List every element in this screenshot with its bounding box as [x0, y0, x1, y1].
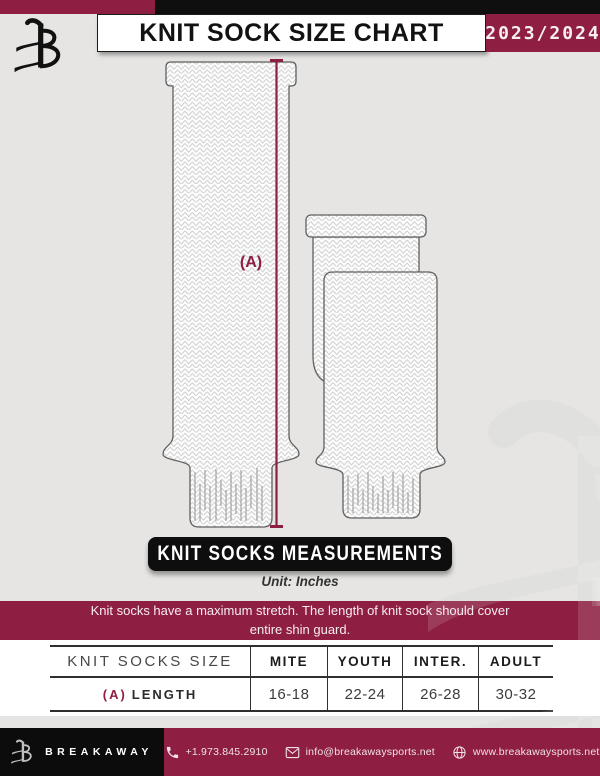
table-header-inter: INTER. — [402, 647, 478, 678]
phone-link[interactable]: +1.973.845.2910 — [165, 745, 268, 760]
page-title: KNIT SOCK SIZE CHART — [139, 19, 443, 48]
season-badge: 2023/2024 — [486, 14, 600, 52]
title-bar: KNIT SOCK SIZE CHART — [97, 14, 486, 52]
page: KNIT SOCK SIZE CHART 2023/2024 — [0, 0, 600, 776]
phone-icon — [165, 745, 180, 760]
brand-wordmark: BREAKAWAY — [45, 746, 153, 758]
top-strip-maroon — [0, 0, 155, 14]
table-header-size: KNIT SOCKS SIZE — [50, 647, 250, 678]
footer: BREAKAWAY +1.973.845.2910 info@breakaway… — [0, 728, 600, 776]
dimension-label-a: (A) — [228, 254, 274, 272]
brand-monogram-logo — [14, 17, 72, 75]
footer-brand-block: BREAKAWAY — [0, 728, 164, 776]
small-sock — [316, 272, 445, 518]
measurements-banner: KNIT SOCKS MEASUREMENTS — [148, 537, 452, 571]
length-key: (A) — [103, 687, 127, 702]
website-address: www.breakawaysports.net — [473, 746, 600, 758]
length-adult: 30-32 — [478, 678, 553, 710]
footer-brand-monogram-icon — [11, 739, 37, 765]
large-sock-rib — [195, 468, 262, 521]
measurement-line — [270, 60, 283, 527]
email-link[interactable]: info@breakawaysports.net — [285, 745, 435, 760]
phone-number: +1.973.845.2910 — [186, 746, 268, 758]
stretch-notice-banner: Knit socks have a maximum stretch. The l… — [0, 601, 600, 640]
footer-contact-block: +1.973.845.2910 info@breakawaysports.net… — [164, 728, 600, 776]
length-label: LENGTH — [132, 687, 197, 702]
table-header-youth: YOUTH — [327, 647, 402, 678]
website-link[interactable]: www.breakawaysports.net — [452, 745, 600, 760]
table-row-length-label: (A) LENGTH — [50, 678, 250, 710]
length-youth: 22-24 — [327, 678, 402, 710]
length-inter: 26-28 — [402, 678, 478, 710]
small-sock-rib — [348, 472, 413, 513]
envelope-icon — [285, 745, 300, 760]
sock-diagram — [0, 0, 600, 600]
top-strip-black — [155, 0, 600, 14]
table-header-mite: MITE — [250, 647, 327, 678]
size-table: KNIT SOCKS SIZE MITE YOUTH INTER. ADULT … — [50, 645, 553, 712]
season-label: 2023/2024 — [485, 23, 600, 44]
email-address: info@breakawaysports.net — [306, 746, 435, 758]
globe-icon — [452, 745, 467, 760]
large-sock — [163, 62, 299, 527]
top-strip — [0, 0, 600, 14]
measurements-banner-label: KNIT SOCKS MEASUREMENTS — [157, 542, 443, 566]
table-header-adult: ADULT — [478, 647, 553, 678]
length-mite: 16-18 — [250, 678, 327, 710]
medium-sock — [306, 215, 426, 385]
stretch-notice-text: Knit socks have a maximum stretch. The l… — [75, 602, 525, 640]
unit-note: Unit: Inches — [0, 574, 600, 589]
